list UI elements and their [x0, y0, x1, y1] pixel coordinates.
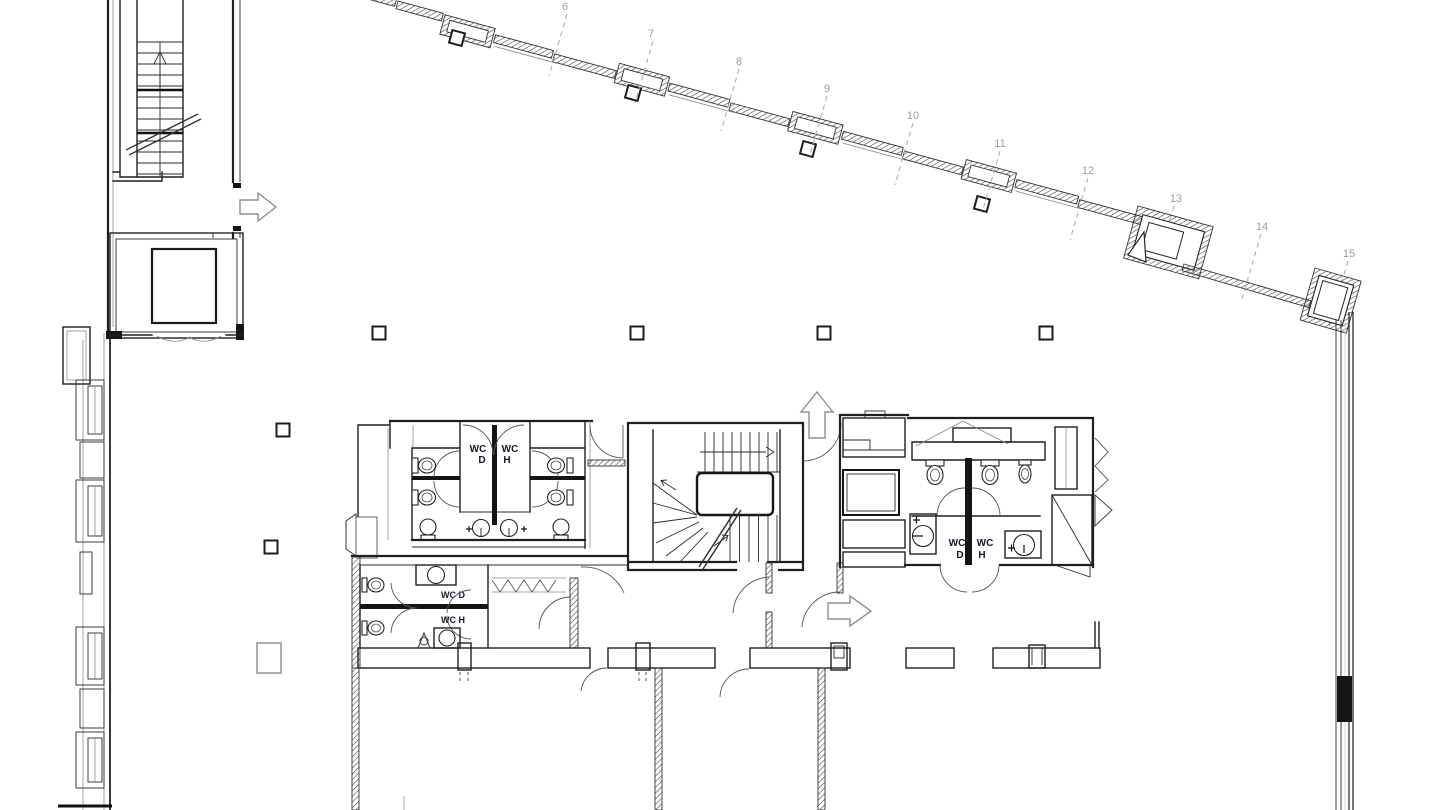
- facade-band: [902, 151, 963, 175]
- wc-label: H: [503, 455, 510, 466]
- shaft: [843, 470, 899, 515]
- ramp-lines: [1055, 565, 1090, 577]
- facade-band: [841, 131, 903, 155]
- door-arc: [539, 597, 571, 629]
- toilet-icon: [553, 519, 569, 540]
- door-arc: [733, 577, 769, 613]
- wc-label: WC: [470, 444, 487, 455]
- facade-band: [729, 103, 790, 127]
- toilet-icon: [981, 460, 999, 485]
- facade-band: [668, 83, 730, 107]
- sink-icon: [428, 567, 445, 584]
- door-arc: [581, 567, 624, 593]
- sink-icon: [439, 630, 455, 646]
- elevator: [106, 233, 244, 341]
- wc-label: D: [956, 550, 963, 561]
- shaft-diagonal: [1052, 495, 1092, 565]
- facade-band: [1182, 264, 1311, 308]
- wc-label: D: [478, 455, 485, 466]
- floor-plan-page: 6 7 8 9 10 11 12 13 14 15: [0, 0, 1440, 810]
- wall-protrusion: [953, 428, 1011, 442]
- stall-divider: [360, 604, 488, 609]
- facade-band: [396, 1, 443, 21]
- window-niche: [76, 480, 104, 542]
- hatched-wall: [570, 578, 578, 648]
- door-frame-mark: [233, 226, 241, 231]
- door-arcs: [581, 668, 749, 697]
- up-arrow-icon: [801, 392, 833, 438]
- window-niche: [76, 380, 104, 440]
- rack-rails: [492, 578, 566, 592]
- door-arc: [590, 425, 623, 458]
- shaft-room-lines: [843, 440, 905, 450]
- toilet-icon: [412, 458, 436, 473]
- pier-dash-marks: [639, 672, 646, 682]
- core-stairs: [628, 423, 841, 570]
- west-facade-wall: [58, 327, 112, 810]
- column-outline-gray: [257, 643, 281, 673]
- grid-label: 14: [1256, 221, 1268, 233]
- east-wall-east-face: [1349, 312, 1353, 810]
- column: [974, 196, 990, 212]
- wall-fill: [236, 324, 244, 340]
- hatched-partition: [352, 668, 359, 810]
- west-wall-faces: [83, 333, 104, 810]
- stall-divider: [530, 476, 585, 480]
- door-arcs: [940, 565, 999, 592]
- shaft-room: [843, 552, 905, 567]
- partition-stub: [766, 612, 772, 648]
- stair-lower-flight: [730, 515, 777, 562]
- grid-axes: 6 7 8 9 10 11 12 13 14 15: [549, 1, 1355, 326]
- toilet-icon: [926, 460, 944, 485]
- wall-return: [1095, 622, 1099, 648]
- column: [373, 327, 386, 340]
- window-niche: [76, 627, 104, 685]
- urinal-icon: [418, 633, 430, 648]
- wc-label: WC: [949, 538, 966, 549]
- partition-stub: [588, 460, 625, 466]
- wall-pier: [636, 643, 650, 670]
- column: [277, 424, 290, 437]
- grid-label: 15: [1343, 248, 1355, 260]
- core-east-wc: WC D WC H: [840, 411, 1112, 592]
- stair-break-line: [699, 508, 741, 569]
- shaft-room: [843, 520, 905, 548]
- core-west-wc: WC D WC H: [346, 421, 625, 558]
- wall-pier: [831, 643, 847, 670]
- vestibule-box: [356, 517, 377, 558]
- pier-grid-15: [1300, 268, 1361, 333]
- column: [449, 30, 465, 46]
- door-wedge: [1095, 495, 1112, 526]
- column: [818, 327, 831, 340]
- stair-direction-arrow-icon: [700, 447, 774, 457]
- hatched-wall: [352, 556, 360, 668]
- urinal-icon: [1019, 460, 1031, 483]
- stair-tower-up-arrow-icon: [154, 52, 166, 90]
- grid-label: 11: [994, 138, 1005, 150]
- grid-label: 13: [1170, 193, 1182, 205]
- wall-step: [80, 552, 92, 594]
- grid-label: 9: [824, 83, 830, 95]
- wall-band: [358, 648, 590, 668]
- room-lines: [388, 425, 413, 540]
- stair-direction-arrow-icon: [661, 480, 676, 490]
- window-band-14: [1182, 264, 1311, 308]
- hatched-partition: [818, 668, 825, 810]
- wc-label: H: [978, 550, 985, 561]
- stall-divider: [412, 476, 460, 480]
- south-wc: WC D WC H: [352, 556, 628, 668]
- wc-label: WC: [502, 444, 519, 455]
- window-niche: [76, 732, 104, 788]
- facade-band: [351, 0, 397, 6]
- exit-arrow-right-icon: [828, 596, 871, 626]
- grid-label: 10: [907, 110, 919, 122]
- toilet-icon: [420, 519, 436, 540]
- lobby-wall-step: [213, 233, 240, 238]
- wc-label: WC H: [441, 615, 465, 625]
- wall-niche: [80, 442, 104, 478]
- south-wall-bands: [352, 622, 1100, 810]
- toilet-icon: [548, 458, 574, 473]
- column: [1040, 327, 1053, 340]
- stair-landing: [697, 473, 773, 515]
- door-wedge: [346, 514, 356, 556]
- grid-label: 12: [1082, 165, 1094, 177]
- hatched-partition: [655, 668, 662, 810]
- hook-zigzag: [492, 580, 556, 592]
- wall-band: [993, 648, 1100, 668]
- east-wall-west-face: [1336, 320, 1341, 810]
- column: [265, 541, 278, 554]
- door-frame-mark: [233, 183, 241, 188]
- fixture-wall: [912, 442, 1045, 460]
- shaft-room: [843, 418, 905, 457]
- pier-lines: [1032, 648, 1042, 665]
- louvre-zigzag: [1095, 438, 1108, 492]
- wall-niche: [80, 689, 104, 728]
- curtain-wall-segments: [346, 0, 1147, 228]
- wall-band: [608, 648, 715, 668]
- corridor-doors: [581, 392, 871, 648]
- toilet-icon: [362, 578, 384, 592]
- wc-label: WC: [977, 538, 994, 549]
- facade-band: [1015, 180, 1079, 205]
- floor-plan-svg: 6 7 8 9 10 11 12 13 14 15: [0, 0, 1440, 810]
- facade-band: [494, 35, 554, 58]
- toilet-icon: [412, 490, 436, 505]
- column: [625, 85, 641, 101]
- toilet-icon: [548, 490, 574, 505]
- grid-label: 8: [736, 56, 742, 68]
- wall-band: [906, 648, 954, 668]
- wall-fill: [1337, 676, 1352, 722]
- pier-dash-marks: [460, 672, 468, 684]
- wc-center-wall: [492, 425, 497, 525]
- toilet-icon: [362, 621, 384, 635]
- grid-label: 7: [648, 28, 654, 40]
- exit-arrow-right-icon: [240, 193, 276, 221]
- grid-label: 6: [562, 1, 568, 13]
- elevator-car: [152, 249, 216, 323]
- column: [631, 327, 644, 340]
- wc-center-wall: [965, 458, 972, 565]
- facade-band: [553, 54, 617, 79]
- partition-stub: [766, 563, 772, 593]
